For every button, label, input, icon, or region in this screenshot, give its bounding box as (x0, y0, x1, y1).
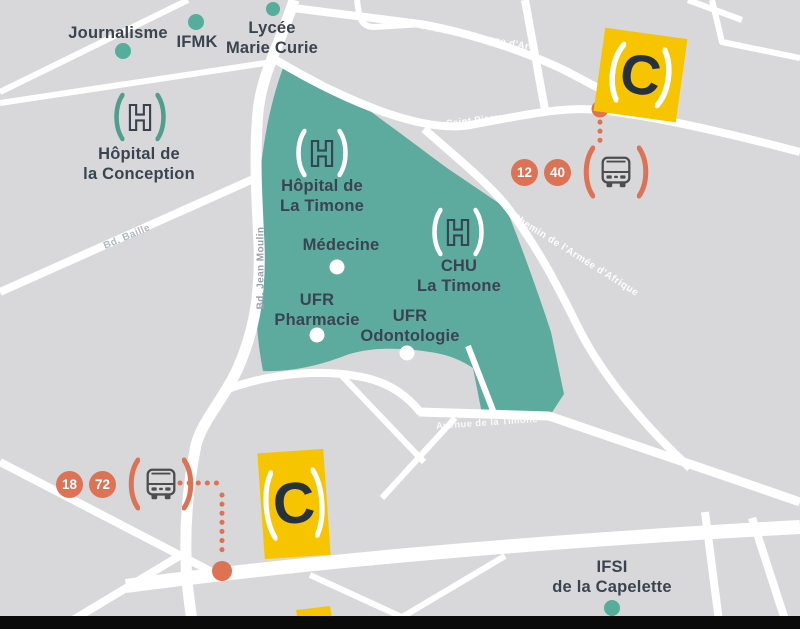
bus-stop-icon (126, 457, 196, 511)
hospital-h-icon (446, 218, 471, 247)
bus-route-badge: 12 (511, 159, 538, 186)
hospital-icon-chu (430, 207, 487, 257)
bus-stop-saint-pierre: 12 40 (511, 145, 651, 199)
campus-logo-letter: C (271, 474, 317, 535)
campus-map: Boulevard Jeanne d'Arc Rue Saint Pierre … (0, 0, 800, 629)
street-label-jean-moulin: Bd. Jean Moulin (256, 227, 267, 310)
paren-close-icon (156, 92, 169, 142)
paren-close-icon (182, 457, 196, 511)
bus-route-badge: 72 (89, 471, 116, 498)
poi-label-ufr-odontologie: UFR Odontologie (360, 306, 459, 346)
hospital-h-icon (310, 139, 335, 168)
campus-logo-north: C (594, 28, 688, 123)
paren-close-icon (474, 207, 487, 257)
poi-label-ifmk: IFMK (176, 32, 217, 52)
poi-label-hopital-conception: Hôpital de la Conception (83, 144, 195, 184)
bus-route-badge: 40 (544, 159, 571, 186)
paren-open-icon (294, 128, 307, 178)
paren-open-icon (126, 457, 140, 511)
hospital-h-icon (128, 103, 153, 132)
paren-close-icon (338, 128, 351, 178)
bus-stop-capelette: 18 72 (56, 457, 196, 511)
poi-label-medecine: Médecine (303, 235, 380, 255)
poi-label-chu-timone: CHU La Timone (417, 256, 501, 296)
poi-label-lycee-marie-curie: Lycée Marie Curie (226, 18, 318, 58)
paren-open-icon (112, 92, 125, 142)
bus-icon (597, 153, 635, 191)
poi-label-ufr-pharmacie: UFR Pharmacie (274, 290, 359, 330)
paren-open-icon (581, 145, 595, 199)
bus-icon (142, 465, 180, 503)
bus-stop-icon (581, 145, 651, 199)
poi-label-ifsi-capelette: IFSI de la Capelette (552, 557, 671, 597)
poi-label-hopital-timone: Hôpital de La Timone (280, 176, 364, 216)
bottom-edge-bar (0, 616, 800, 629)
hospital-icon-timone (294, 128, 351, 178)
paren-open-icon (430, 207, 443, 257)
paren-close-icon (637, 145, 651, 199)
campus-logo-south: C (257, 449, 330, 559)
poi-label-journalisme: Journalisme (68, 23, 167, 43)
bus-route-badge: 18 (56, 471, 83, 498)
hospital-icon-conception (112, 92, 169, 142)
